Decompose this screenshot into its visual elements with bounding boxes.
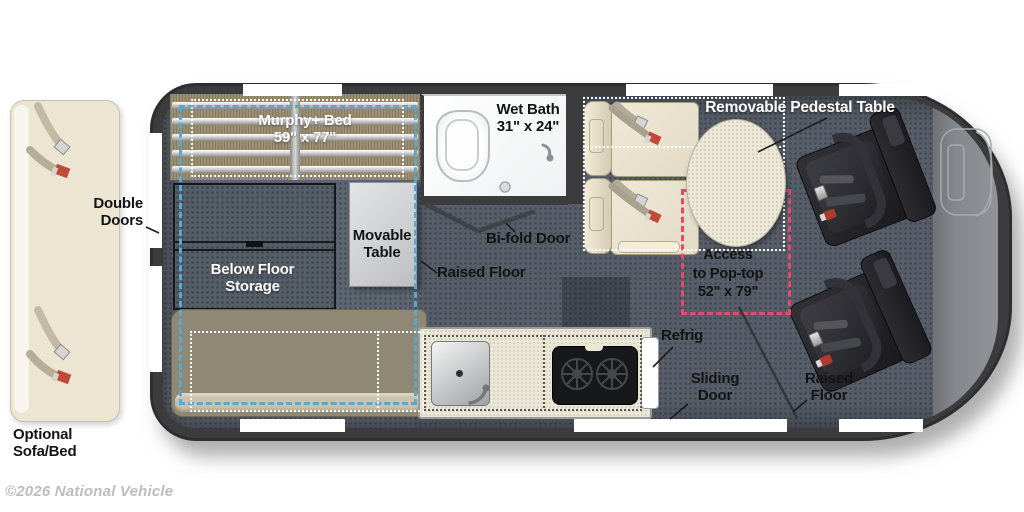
window-gap	[243, 84, 342, 96]
bench-guide-divider	[377, 331, 379, 408]
murphy-bed-label: Murphy+ Bed 59" x 77"	[235, 113, 375, 147]
pop-top-line1: Access	[672, 246, 784, 265]
toilet-icon	[436, 110, 490, 182]
bifold-door-name: Bi-fold Door	[486, 231, 596, 248]
double-doors-line2: Doors	[83, 213, 143, 230]
movable-table-line2: Table	[347, 245, 417, 262]
pop-top-access-label: Access to Pop-top 52" x 79"	[672, 246, 784, 302]
wet-bath-threshold	[421, 196, 568, 205]
bench-guide-dotted	[190, 331, 424, 412]
storage-line2: Storage	[185, 279, 320, 296]
cab-floor	[933, 96, 998, 428]
movable-table-label: Movable Table	[347, 228, 417, 262]
seatbelt-icon	[820, 175, 854, 184]
optional-sofa-line2: Sofa/Bed	[13, 444, 123, 461]
raised-floor-front-label: Raised Floor	[799, 371, 859, 405]
storage-line1: Below Floor	[185, 262, 320, 279]
window-gap	[240, 419, 345, 432]
pop-top-line2: to Pop-top	[672, 265, 784, 284]
double-doors-label: Double Doors	[83, 196, 143, 230]
double-doors-line1: Double	[83, 196, 143, 213]
copyright-watermark: ©2026 National Vehicle	[5, 483, 173, 500]
pop-top-dims: 52" x 79"	[672, 283, 784, 302]
pedestal-table-label: Removable Pedestal Table	[700, 99, 900, 116]
kitchen-guide-dotted	[424, 335, 642, 411]
raised-floor-mid-name: Raised Floor	[437, 265, 547, 282]
refrigerator	[641, 337, 659, 409]
optional-sofa-bed	[10, 100, 120, 422]
wet-bath-dims: 31" x 24"	[483, 119, 573, 136]
sliding-door-label: Sliding Door	[684, 371, 746, 405]
wet-bath-label: Wet Bath 31" x 24"	[483, 102, 573, 136]
sliding-door-line1: Sliding	[684, 371, 746, 388]
murphy-bed-dims: 59" x 77"	[235, 130, 375, 147]
below-floor-storage-label: Below Floor Storage	[185, 262, 320, 296]
pedestal-table-name: Removable Pedestal Table	[700, 99, 900, 116]
sofa-highlight	[14, 105, 29, 413]
sliding-door-opening	[574, 419, 787, 432]
toilet-lid	[445, 119, 479, 171]
optional-sofa-line1: Optional	[13, 427, 123, 444]
raised-floor-mid-label: Raised Floor	[437, 265, 547, 282]
raised-floor-front-line1: Raised	[799, 371, 859, 388]
sliding-door-line2: Door	[684, 388, 746, 405]
refrig-label: Refrig	[661, 328, 703, 345]
raised-floor-front-line2: Floor	[799, 388, 859, 405]
wet-bath-name: Wet Bath	[483, 102, 573, 119]
optional-sofa-label: Optional Sofa/Bed	[13, 427, 123, 461]
floorplan-canvas: Murphy+ Bed 59" x 77" Wet Bath 31" x 24"…	[0, 0, 1024, 512]
removable-pedestal-table	[686, 119, 786, 247]
refrig-name: Refrig	[661, 328, 703, 345]
murphy-bed-name: Murphy+ Bed	[235, 113, 375, 130]
window-gap	[839, 84, 936, 96]
movable-table-line1: Movable	[347, 228, 417, 245]
double-door-opening	[149, 266, 162, 372]
bifold-door-label: Bi-fold Door	[486, 231, 596, 248]
window-gap	[626, 84, 773, 96]
counter-shadow	[562, 277, 630, 328]
kitchen-guide-divider	[543, 335, 545, 408]
double-door-opening	[149, 133, 162, 248]
window-gap	[839, 419, 923, 432]
